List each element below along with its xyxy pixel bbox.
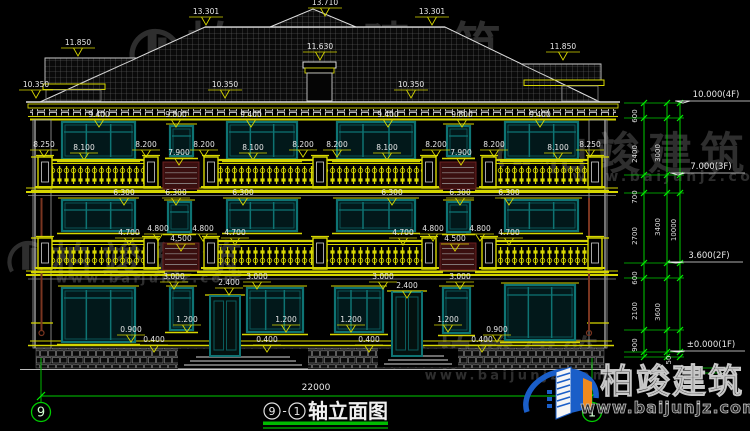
svg-text:9.800: 9.800: [165, 110, 187, 119]
svg-text:10.000(4F): 10.000(4F): [693, 90, 740, 100]
svg-text:13.301: 13.301: [419, 7, 445, 16]
level-marker: 10.000(4F): [675, 90, 750, 103]
svg-text:0.400: 0.400: [358, 335, 380, 344]
chain-dim-label: 700: [631, 190, 639, 203]
svg-text:4.700: 4.700: [392, 228, 414, 237]
svg-text:4.500: 4.500: [444, 234, 466, 243]
svg-text:9.400: 9.400: [377, 110, 399, 119]
svg-text:4.800: 4.800: [422, 224, 444, 233]
balcony-balustrade: [475, 237, 609, 273]
svg-text:7.900: 7.900: [450, 148, 472, 157]
svg-text:3.000: 3.000: [372, 272, 394, 281]
svg-text:2.400: 2.400: [218, 278, 240, 287]
svg-text:8.200: 8.200: [483, 140, 505, 149]
svg-text:10.350: 10.350: [23, 80, 49, 89]
svg-text:7.000(3F): 7.000(3F): [690, 162, 731, 172]
svg-text:8.200: 8.200: [326, 140, 348, 149]
svg-text:13.710: 13.710: [312, 0, 338, 7]
svg-text:4.700: 4.700: [118, 228, 140, 237]
svg-text:4.700: 4.700: [498, 228, 520, 237]
chain-dim-label: 3000: [654, 144, 662, 162]
svg-text:0.400: 0.400: [143, 335, 165, 344]
window: [165, 286, 198, 333]
svg-text:4.700: 4.700: [224, 228, 246, 237]
dim-label: 2.400: [215, 278, 243, 295]
window: [57, 286, 140, 345]
svg-text:±0.000(1F): ±0.000(1F): [687, 340, 735, 350]
cad-elevation-canvas: 柏竣建筑www.baijunjz.com柏竣建筑www.baijunjz.com…: [0, 0, 750, 431]
dim-label: 11.850: [61, 38, 95, 56]
svg-text:0.400: 0.400: [471, 335, 493, 344]
svg-text:6.300: 6.300: [498, 188, 520, 197]
svg-text:0.400: 0.400: [256, 335, 278, 344]
louver-panel: [163, 243, 199, 270]
balcony-balustrade: [197, 156, 443, 192]
svg-text:8.250: 8.250: [33, 140, 55, 149]
chain-dim-label: 2100: [631, 302, 639, 320]
chain-dim-label: 600: [631, 271, 639, 284]
window: [500, 120, 583, 162]
total-width-dim: 22000: [302, 383, 331, 393]
balcony-balustrade: [475, 156, 609, 192]
chain-dim-label: 3600: [654, 303, 662, 321]
chain-dim-label: 600: [631, 109, 639, 122]
chain-dim-label: 10000: [670, 219, 678, 241]
svg-text:8.200: 8.200: [292, 140, 314, 149]
svg-text:6.300: 6.300: [113, 188, 135, 197]
elevation-drawing: 柏竣建筑www.baijunjz.com柏竣建筑www.baijunjz.com…: [0, 0, 750, 431]
dim-label: 11.850: [546, 42, 580, 60]
title-axis-start: 9: [269, 405, 276, 418]
dim-label: 8.250: [30, 140, 58, 157]
dim-label: 8.200: [480, 140, 508, 157]
svg-text:2.400: 2.400: [396, 281, 418, 290]
svg-text:11.630: 11.630: [307, 42, 333, 51]
window: [500, 283, 580, 343]
dim-label: 8.200: [190, 140, 218, 157]
chain-dim-label: 2400: [631, 145, 639, 163]
svg-text:11.850: 11.850: [550, 42, 576, 51]
svg-text:3.600(2F): 3.600(2F): [688, 251, 729, 261]
svg-text:8.200: 8.200: [193, 140, 215, 149]
svg-text:9.400: 9.400: [240, 110, 262, 119]
svg-text:4.800: 4.800: [147, 224, 169, 233]
svg-text:10.350: 10.350: [212, 80, 238, 89]
svg-text:7.900: 7.900: [168, 148, 190, 157]
svg-text:6.300: 6.300: [232, 188, 254, 197]
svg-text:8.100: 8.100: [376, 143, 398, 152]
svg-text:4.800: 4.800: [192, 224, 214, 233]
drawing-title: 轴立面图: [308, 399, 388, 423]
title-axis-sep: -: [282, 404, 286, 418]
chimney: [303, 62, 336, 101]
svg-text:1.200: 1.200: [176, 315, 198, 324]
svg-text:1.200: 1.200: [340, 315, 362, 324]
chain-dim-label: 2700: [631, 227, 639, 245]
level-marker: 3.600(2F): [668, 251, 743, 263]
logo-url-text: www.baijunjz.com: [580, 398, 750, 417]
svg-text:0.900: 0.900: [120, 325, 142, 334]
svg-text:8.100: 8.100: [73, 143, 95, 152]
svg-text:9.800: 9.800: [451, 110, 473, 119]
svg-text:3.000: 3.000: [163, 272, 185, 281]
svg-text:1.200: 1.200: [437, 315, 459, 324]
window: [438, 286, 475, 336]
svg-text:6.300: 6.300: [449, 188, 471, 197]
svg-text:4.500: 4.500: [170, 234, 192, 243]
svg-text:8.250: 8.250: [579, 140, 601, 149]
svg-text:9.400: 9.400: [529, 110, 551, 119]
svg-text:6.300: 6.300: [381, 188, 403, 197]
svg-text:0.900: 0.900: [486, 325, 508, 334]
dim-label: 8.200: [422, 140, 450, 157]
balcony-balustrade: [31, 156, 165, 192]
svg-text:11.850: 11.850: [65, 38, 91, 47]
logo-brand-text: 柏竣建筑: [600, 362, 744, 402]
dim-label: 4.700: [495, 228, 523, 245]
svg-text:9.400: 9.400: [88, 110, 110, 119]
axis-bubble-9-label: 9: [37, 406, 45, 421]
svg-text:8.200: 8.200: [135, 140, 157, 149]
louver-panel: [163, 162, 199, 189]
svg-text:13.301: 13.301: [193, 7, 219, 16]
dim-label: 4.700: [389, 228, 417, 245]
svg-text:8.100: 8.100: [242, 143, 264, 152]
svg-text:3.000: 3.000: [246, 272, 268, 281]
window: [330, 286, 388, 335]
svg-text:8.200: 8.200: [425, 140, 447, 149]
chain-dim-label: 3400: [654, 218, 662, 236]
brand-logo: 柏竣建筑 www.baijunjz.com: [526, 362, 750, 419]
title-block: 9 - 1 轴立面图: [263, 399, 388, 428]
svg-text:1.200: 1.200: [275, 315, 297, 324]
chain-dim-label: 900: [631, 338, 639, 351]
stone-plinth: [20, 348, 630, 370]
svg-text:8.100: 8.100: [547, 143, 569, 152]
window: [222, 120, 302, 162]
dim-label: 8.200: [132, 140, 160, 157]
louver-panel: [440, 162, 476, 189]
window: [242, 286, 308, 335]
svg-text:3.000: 3.000: [449, 272, 471, 281]
svg-text:10.350: 10.350: [398, 80, 424, 89]
title-axis-end: 1: [294, 405, 301, 418]
svg-text:4.800: 4.800: [469, 224, 491, 233]
svg-text:6.300: 6.300: [165, 188, 187, 197]
